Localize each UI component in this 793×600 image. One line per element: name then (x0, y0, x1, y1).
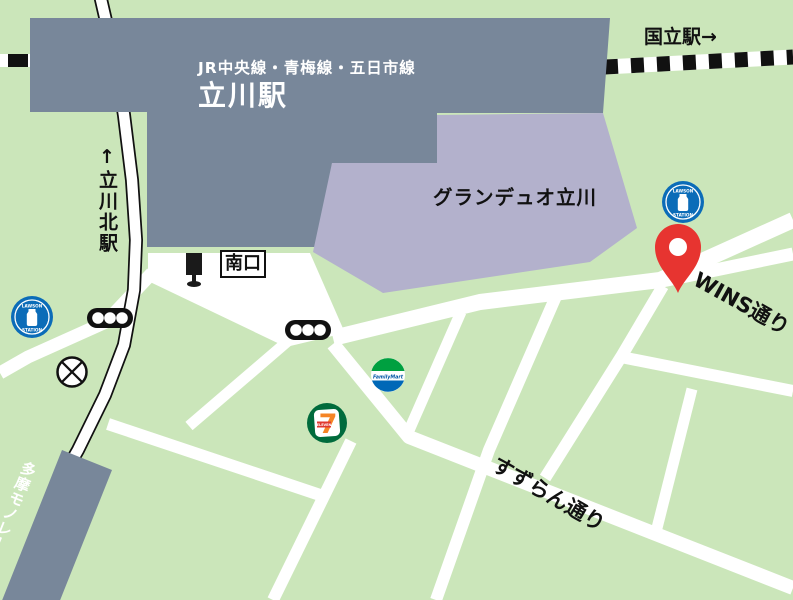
south-exit-sign: 南口 (220, 250, 266, 278)
familymart-text: FamilyMart (373, 375, 404, 381)
map-base: LAWSON STATION (0, 0, 793, 600)
granduo-label: グランデュオ立川 (433, 181, 597, 210)
eleven-text: ELEVEN (317, 423, 332, 427)
kunitachi-direction-label: 国立駅→ (644, 22, 717, 49)
traffic-light-south-exit (285, 320, 331, 340)
station-area-map: LAWSON STATION (0, 0, 793, 600)
lawson-logo-west (11, 296, 53, 338)
seven-eleven-logo: 7 ELEVEN (307, 403, 347, 443)
tachikawa-kita-label: ↑立川北駅 (94, 146, 121, 254)
station-name-label: 立川駅 (198, 74, 288, 114)
railroad-crossing-icon (58, 358, 87, 387)
familymart-logo: FamilyMart (371, 358, 405, 392)
lawson-logo-east (662, 181, 704, 223)
traffic-light-west (87, 308, 133, 328)
